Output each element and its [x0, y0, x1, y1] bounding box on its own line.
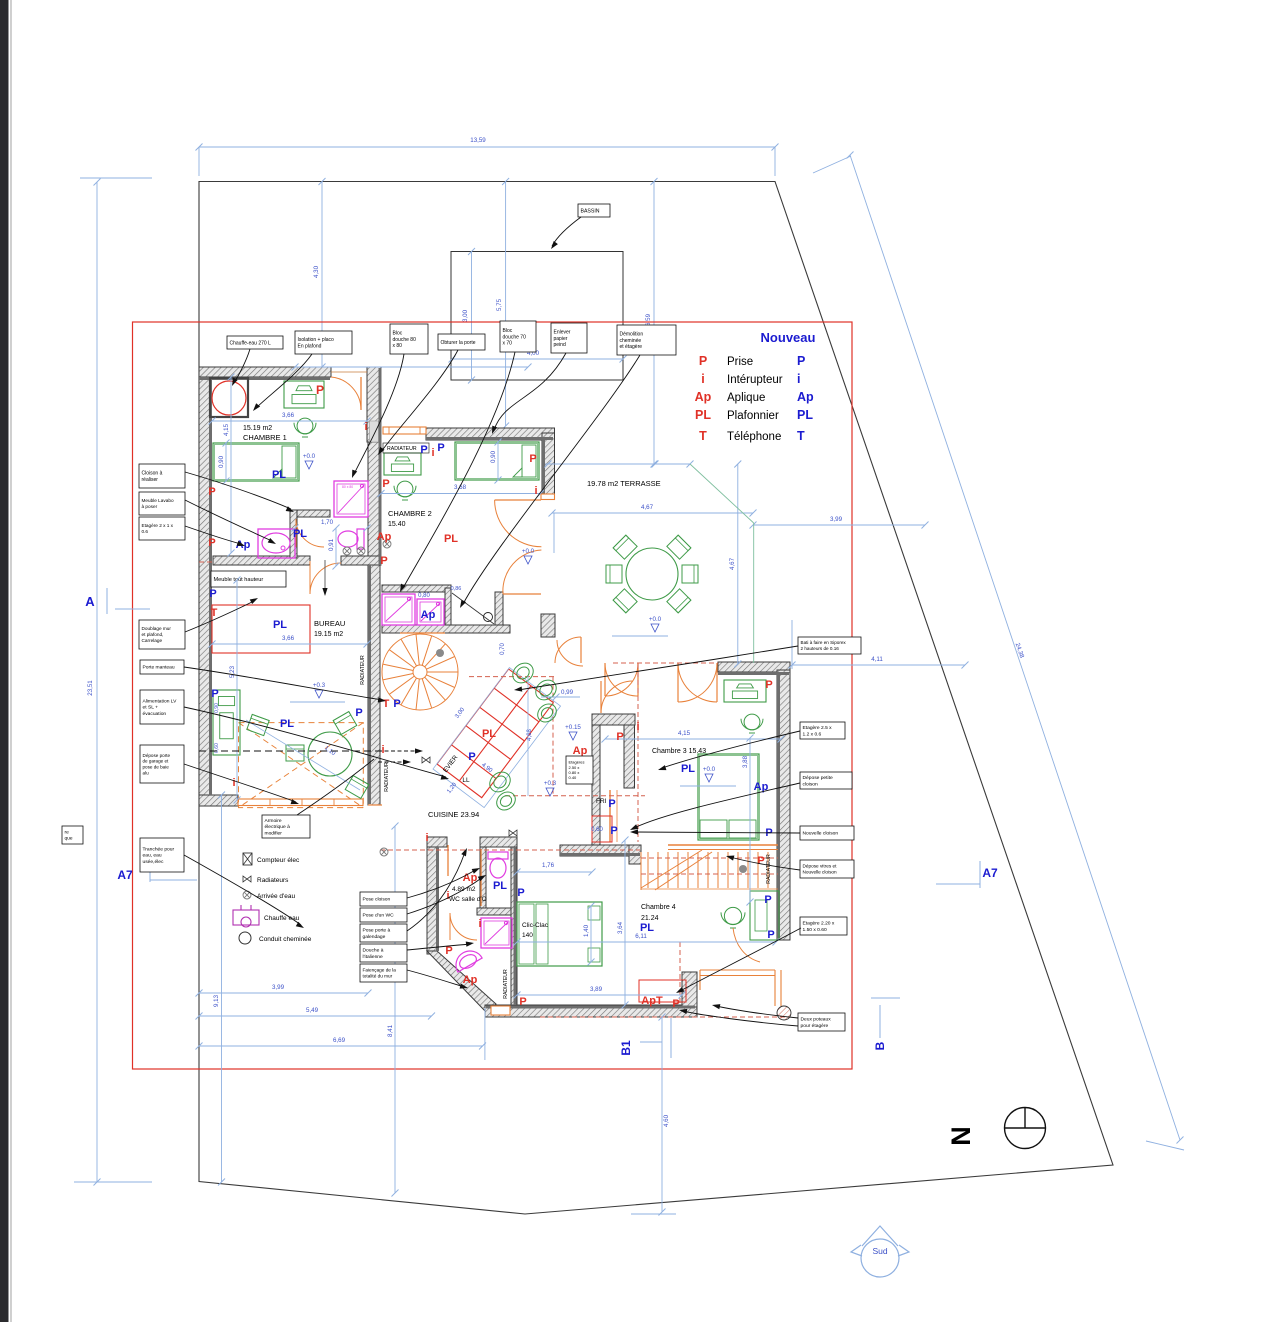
svg-text:totalité du mur: totalité du mur	[363, 974, 393, 979]
svg-text:19.15 m2: 19.15 m2	[314, 631, 343, 638]
svg-text:l'italienne: l'italienne	[363, 954, 384, 960]
svg-text:et plafond,: et plafond,	[142, 632, 164, 637]
svg-text:1,40: 1,40	[583, 924, 590, 937]
svg-text:Bati à faire en Siporex: Bati à faire en Siporex	[801, 640, 847, 645]
svg-text:RADIATEUR: RADIATEUR	[384, 762, 390, 792]
svg-text:4,15: 4,15	[678, 730, 691, 737]
svg-text:i: i	[797, 372, 800, 386]
svg-text:P: P	[757, 855, 764, 867]
svg-text:T: T	[699, 429, 707, 443]
svg-text:3,64: 3,64	[617, 921, 624, 934]
svg-text:A: A	[85, 594, 95, 609]
svg-text:Démolition: Démolition	[620, 332, 644, 338]
svg-text:i: i	[431, 447, 434, 459]
svg-text:Chauffe eau: Chauffe eau	[264, 915, 300, 922]
svg-text:alu: alu	[143, 770, 150, 775]
svg-text:Clic-Clac: Clic-Clac	[522, 922, 549, 929]
svg-text:P: P	[517, 887, 524, 899]
svg-text:PL: PL	[695, 408, 711, 422]
svg-text:Armoire: Armoire	[265, 818, 282, 824]
svg-text:Porte manteau: Porte manteau	[143, 665, 175, 671]
svg-text:i: i	[425, 832, 428, 844]
svg-text:P: P	[672, 998, 679, 1010]
svg-text:i: i	[446, 890, 449, 902]
svg-text:i: i	[232, 777, 235, 789]
svg-text:Chambre 3 15.43: Chambre 3 15.43	[652, 748, 706, 755]
svg-text:Sud: Sud	[872, 1246, 887, 1256]
svg-text:Deux poteaux: Deux poteaux	[801, 1017, 832, 1023]
svg-text:Ap: Ap	[377, 531, 392, 543]
svg-text:cloison: cloison	[803, 781, 819, 787]
svg-text:Chauffe-eau 270 L: Chauffe-eau 270 L	[230, 340, 272, 346]
svg-text:P: P	[437, 442, 444, 454]
svg-text:PL: PL	[797, 408, 813, 422]
svg-text:0,90: 0,90	[490, 450, 497, 463]
svg-text:+0.0: +0.0	[703, 766, 716, 773]
svg-text:Pose d'un WC: Pose d'un WC	[363, 913, 395, 919]
svg-text:Intérupteur: Intérupteur	[727, 374, 783, 386]
svg-text:19.78 m2 TERRASSE: 19.78 m2 TERRASSE	[587, 479, 661, 488]
svg-text:Ap: Ap	[695, 390, 712, 404]
svg-text:Doublage mur: Doublage mur	[142, 626, 172, 631]
svg-text:+0.3: +0.3	[313, 682, 326, 689]
svg-text:A7: A7	[117, 868, 133, 882]
svg-text:Ap: Ap	[463, 974, 478, 986]
svg-text:3,88: 3,88	[742, 755, 749, 768]
svg-text:et SL +: et SL +	[143, 705, 159, 711]
svg-text:douche 70: douche 70	[503, 334, 527, 340]
svg-text:B1: B1	[619, 1040, 633, 1056]
svg-text:En plafond: En plafond	[298, 343, 322, 349]
svg-text:Dépose vitres et: Dépose vitres et	[803, 864, 838, 869]
svg-text:1,76: 1,76	[542, 862, 555, 869]
svg-text:i: i	[701, 372, 704, 386]
svg-text:Ap: Ap	[573, 745, 588, 757]
svg-text:P: P	[608, 798, 615, 810]
svg-text:6,11: 6,11	[635, 933, 647, 940]
svg-text:Aplique: Aplique	[727, 392, 765, 404]
svg-text:Conduit cheminée: Conduit cheminée	[259, 936, 312, 943]
svg-text:2 hauteurs de 0.16: 2 hauteurs de 0.16	[801, 646, 840, 651]
svg-text:Douche à: Douche à	[363, 948, 384, 954]
svg-text:pose de baie: pose de baie	[143, 765, 170, 770]
svg-text:cheminée: cheminée	[620, 338, 642, 344]
svg-text:P: P	[764, 894, 771, 906]
svg-text:re: re	[65, 830, 70, 836]
svg-text:Nouvelle cloison: Nouvelle cloison	[803, 831, 839, 837]
svg-text:P: P	[382, 478, 389, 490]
svg-text:A7: A7	[982, 866, 998, 880]
svg-text:140: 140	[522, 932, 533, 939]
svg-text:Dépose porte: Dépose porte	[143, 753, 171, 758]
svg-text:Plafonnier: Plafonnier	[727, 410, 779, 422]
svg-text:Ap: Ap	[421, 609, 436, 621]
svg-text:Chambre 4: Chambre 4	[641, 904, 676, 911]
svg-text:que: que	[65, 837, 73, 842]
svg-text:3,99: 3,99	[830, 516, 843, 523]
svg-text:réaliser: réaliser	[142, 477, 159, 483]
svg-text:+0.0: +0.0	[522, 548, 535, 555]
svg-text:PL: PL	[280, 718, 294, 730]
svg-text:Prise: Prise	[727, 356, 753, 368]
svg-text:4,15: 4,15	[223, 423, 230, 436]
svg-text:et étagère: et étagère	[620, 344, 643, 350]
svg-text:Tranchée pour: Tranchée pour	[143, 847, 175, 853]
svg-text:i: i	[636, 721, 639, 733]
svg-text:P: P	[209, 588, 216, 600]
svg-text:Compteur élec: Compteur élec	[257, 857, 300, 864]
svg-text:Isolation + placo: Isolation + placo	[298, 337, 334, 343]
svg-text:Meuble Lavabo: Meuble Lavabo	[142, 498, 174, 503]
svg-text:80 x 80: 80 x 80	[342, 485, 353, 489]
svg-text:4,60: 4,60	[663, 1114, 670, 1127]
svg-text:4,30: 4,30	[313, 265, 320, 278]
svg-text:0,86: 0,86	[451, 586, 462, 592]
svg-text:P: P	[519, 996, 526, 1008]
svg-text:de garage et: de garage et	[143, 759, 170, 764]
svg-text:usée,élec: usée,élec	[143, 859, 164, 865]
svg-text:P: P	[380, 555, 387, 567]
svg-text:P: P	[616, 731, 623, 743]
svg-text:3,89: 3,89	[590, 986, 603, 993]
svg-text:1,70: 1,70	[321, 519, 334, 526]
svg-text:x 70: x 70	[503, 340, 513, 346]
svg-text:Pose porte à: Pose porte à	[363, 928, 391, 934]
svg-text:0,80: 0,80	[418, 593, 430, 599]
svg-text:4,67: 4,67	[641, 504, 654, 511]
svg-text:P: P	[797, 354, 805, 368]
svg-text:PL: PL	[293, 528, 307, 540]
svg-text:i: i	[381, 744, 384, 756]
svg-text:0,60: 0,60	[591, 827, 603, 833]
svg-text:+0.0: +0.0	[649, 616, 662, 623]
svg-text:Carrelage: Carrelage	[142, 638, 163, 643]
svg-text:5,75: 5,75	[496, 298, 503, 311]
svg-text:T: T	[797, 429, 805, 443]
svg-text:0.40: 0.40	[569, 775, 578, 780]
svg-text:pour étagère: pour étagère	[801, 1023, 829, 1029]
svg-text:WC salle d'O: WC salle d'O	[449, 896, 487, 903]
svg-text:P: P	[767, 929, 774, 941]
svg-text:3,00: 3,00	[462, 309, 469, 322]
svg-text:0,90: 0,90	[214, 703, 220, 713]
svg-text:P: P	[355, 707, 362, 719]
svg-text:23,51: 23,51	[87, 680, 94, 696]
svg-text:Alimentation LV: Alimentation LV	[143, 699, 178, 705]
svg-text:9,13: 9,13	[213, 994, 220, 1007]
svg-text:Bloc: Bloc	[503, 328, 513, 334]
svg-text:3,66: 3,66	[282, 412, 295, 419]
svg-text:Cloison à: Cloison à	[142, 471, 163, 477]
svg-text:5,23: 5,23	[229, 665, 236, 678]
svg-text:PL: PL	[493, 880, 507, 892]
svg-text:6,59: 6,59	[645, 313, 652, 326]
svg-text:P: P	[316, 383, 324, 397]
svg-text:P: P	[765, 679, 772, 691]
svg-text:CHAMBRE 1: CHAMBRE 1	[243, 433, 287, 442]
svg-text:i: i	[364, 421, 367, 433]
svg-text:Nouveau: Nouveau	[761, 330, 816, 345]
svg-text:0,99: 0,99	[561, 689, 574, 696]
svg-text:BASSIN: BASSIN	[581, 208, 600, 214]
svg-text:T: T	[211, 607, 218, 619]
svg-text:RADIATEUR: RADIATEUR	[766, 854, 772, 884]
svg-text:Etagère 2 x 1 x: Etagère 2 x 1 x	[142, 523, 174, 528]
svg-text:B: B	[873, 1041, 887, 1050]
svg-text:BUREAU: BUREAU	[314, 619, 345, 628]
svg-text:P: P	[393, 698, 400, 710]
svg-text:CHAMBRE 2: CHAMBRE 2	[388, 509, 432, 518]
svg-text:P: P	[610, 825, 617, 837]
svg-text:CUISINE 23.94: CUISINE 23.94	[428, 810, 479, 819]
svg-text:x 80: x 80	[393, 343, 403, 349]
svg-text:P: P	[445, 945, 452, 957]
svg-text:à poser: à poser	[142, 504, 158, 509]
svg-text:évacuation: évacuation	[143, 711, 167, 717]
svg-text:douche 80: douche 80	[393, 337, 417, 343]
svg-text:3,99: 3,99	[272, 984, 285, 991]
svg-text:Etagère 2.5 x: Etagère 2.5 x	[803, 725, 833, 731]
svg-text:Arrivée d'eau: Arrivée d'eau	[257, 893, 295, 900]
svg-text:Ap: Ap	[797, 390, 814, 404]
svg-text:4,67: 4,67	[729, 557, 736, 570]
svg-text:P: P	[529, 453, 536, 465]
svg-text:RADIATEUR: RADIATEUR	[360, 655, 366, 685]
svg-text:1.50 x 0.60: 1.50 x 0.60	[803, 927, 827, 933]
svg-text:Faiençage de la: Faiençage de la	[363, 968, 397, 973]
svg-text:i: i	[534, 485, 537, 497]
svg-text:1.2 x 0.6: 1.2 x 0.6	[803, 731, 822, 737]
svg-text:+0.0: +0.0	[303, 453, 316, 460]
svg-text:i: i	[478, 918, 481, 930]
svg-text:eau, eau: eau, eau	[143, 854, 162, 859]
svg-text:T: T	[383, 698, 390, 710]
svg-text:galendage: galendage	[363, 934, 386, 940]
svg-text:21.24: 21.24	[641, 915, 659, 922]
svg-text:15.40: 15.40	[388, 521, 406, 528]
svg-text:Etagère 2.20 x: Etagère 2.20 x	[803, 921, 835, 927]
svg-text:0,91: 0,91	[328, 538, 335, 551]
svg-text:Nouvelle cloison: Nouvelle cloison	[803, 870, 838, 875]
svg-text:électrique à: électrique à	[265, 824, 291, 830]
svg-text:3,66: 3,66	[282, 635, 295, 642]
svg-text:0,90: 0,90	[218, 455, 225, 468]
svg-text:Radiateurs: Radiateurs	[257, 877, 289, 884]
svg-text:modifier: modifier	[265, 830, 283, 836]
svg-text:15.19 m2: 15.19 m2	[243, 425, 272, 432]
svg-text:0.6: 0.6	[142, 529, 149, 534]
svg-text:LL: LL	[462, 777, 470, 784]
svg-text:13,59: 13,59	[470, 137, 486, 144]
svg-text:PL: PL	[640, 922, 654, 934]
svg-text:P: P	[420, 444, 427, 456]
svg-text:Téléphone: Téléphone	[727, 431, 781, 443]
svg-text:5,49: 5,49	[306, 1007, 319, 1014]
svg-text:RADIATEUR: RADIATEUR	[387, 446, 417, 452]
svg-text:PL: PL	[681, 763, 695, 775]
svg-text:PL: PL	[273, 619, 287, 631]
svg-text:8,41: 8,41	[387, 1024, 394, 1037]
svg-text:P: P	[468, 751, 475, 763]
svg-text:+0.3: +0.3	[544, 780, 557, 787]
svg-text:peind: peind	[554, 342, 566, 348]
svg-text:P: P	[208, 537, 215, 549]
svg-text:papier: papier	[554, 336, 568, 342]
svg-text:Dépose petite: Dépose petite	[803, 775, 833, 781]
svg-text:Obturer la porte: Obturer la porte	[441, 340, 476, 346]
svg-text:0,70: 0,70	[500, 643, 506, 655]
svg-text:PL: PL	[482, 728, 496, 740]
svg-text:N: N	[946, 1126, 976, 1146]
svg-text:Bloc: Bloc	[393, 331, 403, 337]
svg-text:4,11: 4,11	[871, 656, 883, 663]
svg-text:Enlever: Enlever	[554, 330, 571, 336]
svg-text:FRI: FRI	[596, 798, 607, 805]
svg-text:P: P	[208, 486, 215, 498]
svg-text:6,69: 6,69	[333, 1037, 346, 1044]
svg-text:P: P	[699, 354, 707, 368]
svg-text:+0.15: +0.15	[565, 724, 581, 731]
svg-text:ApT: ApT	[641, 995, 663, 1007]
svg-text:P: P	[211, 688, 218, 700]
svg-text:Pose cloison: Pose cloison	[363, 897, 391, 903]
svg-text:RADIATEUR: RADIATEUR	[503, 969, 509, 999]
svg-text:PL: PL	[444, 533, 458, 545]
svg-text:PL: PL	[272, 469, 286, 481]
